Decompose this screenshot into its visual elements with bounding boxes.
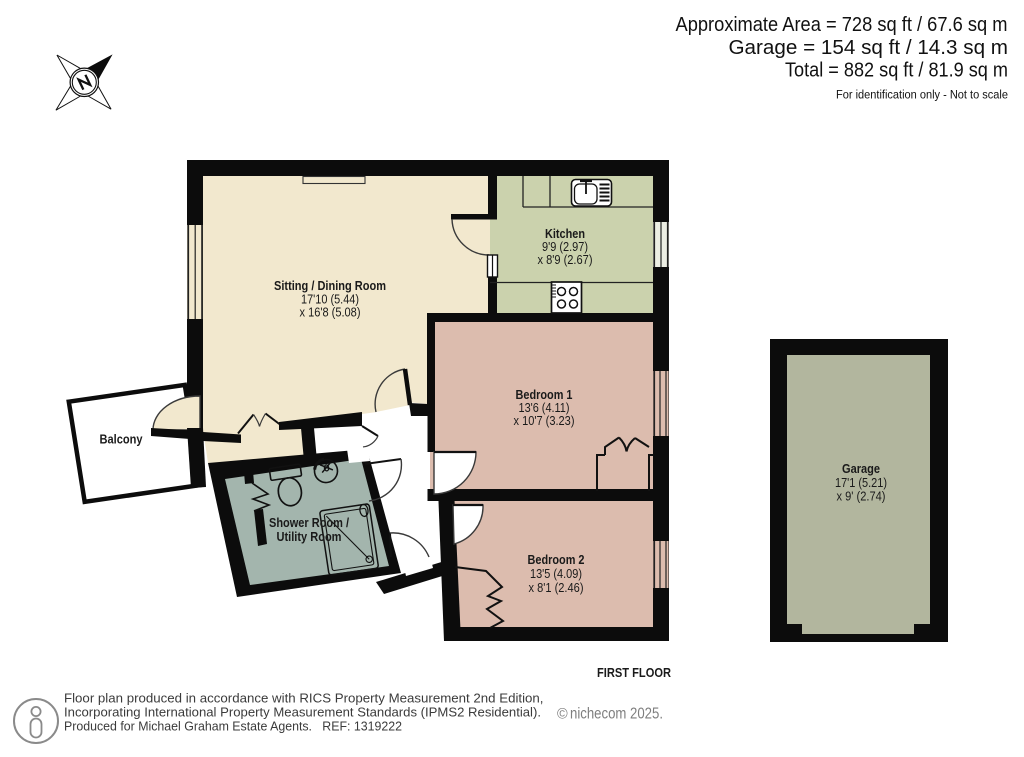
svg-text:Utility Room: Utility Room xyxy=(277,530,342,544)
svg-text:Total = 882 sq ft / 81.9 sq m: Total = 882 sq ft / 81.9 sq m xyxy=(785,59,1008,82)
svg-text:Sitting / Dining Room: Sitting / Dining Room xyxy=(274,279,386,293)
svg-text:x 16'8 (5.08): x 16'8 (5.08) xyxy=(300,306,361,320)
svg-text:Balcony: Balcony xyxy=(100,433,143,447)
svg-text:For identification only - Not: For identification only - Not to scale xyxy=(836,87,1008,101)
svg-text:Produced for Michael Graham Es: Produced for Michael Graham Estate Agent… xyxy=(64,719,402,734)
svg-text:x 8'1 (2.46): x 8'1 (2.46) xyxy=(529,581,584,595)
svg-text:Incorporating International Pr: Incorporating International Property Mea… xyxy=(64,704,541,719)
svg-text:17'10 (5.44): 17'10 (5.44) xyxy=(301,293,359,307)
svg-text:Kitchen: Kitchen xyxy=(545,227,585,241)
svg-text:x 9' (2.74): x 9' (2.74) xyxy=(837,490,886,504)
svg-text:nichecom 2025.: nichecom 2025. xyxy=(570,706,663,723)
svg-text:9'9 (2.97): 9'9 (2.97) xyxy=(542,240,588,254)
svg-text:13'5 (4.09): 13'5 (4.09) xyxy=(530,567,582,581)
svg-text:Garage = 154 sq ft / 14.3 sq m: Garage = 154 sq ft / 14.3 sq m xyxy=(729,36,1009,59)
svg-text:Shower Room /: Shower Room / xyxy=(269,516,349,530)
svg-text:Garage: Garage xyxy=(842,462,880,476)
svg-text:FIRST FLOOR: FIRST FLOOR xyxy=(597,665,672,680)
svg-text:x 10'7 (3.23): x 10'7 (3.23) xyxy=(514,414,575,428)
svg-text:Bedroom 2: Bedroom 2 xyxy=(528,553,585,567)
svg-text:x 8'9 (2.67): x 8'9 (2.67) xyxy=(538,253,593,267)
svg-text:Approximate Area = 728 sq ft /: Approximate Area = 728 sq ft / 67.6 sq m xyxy=(676,13,1008,36)
svg-text:13'6 (4.11): 13'6 (4.11) xyxy=(519,401,570,415)
svg-text:Bedroom 1: Bedroom 1 xyxy=(516,388,573,402)
svg-text:©: © xyxy=(557,707,568,723)
svg-text:17'1 (5.21): 17'1 (5.21) xyxy=(835,476,887,490)
